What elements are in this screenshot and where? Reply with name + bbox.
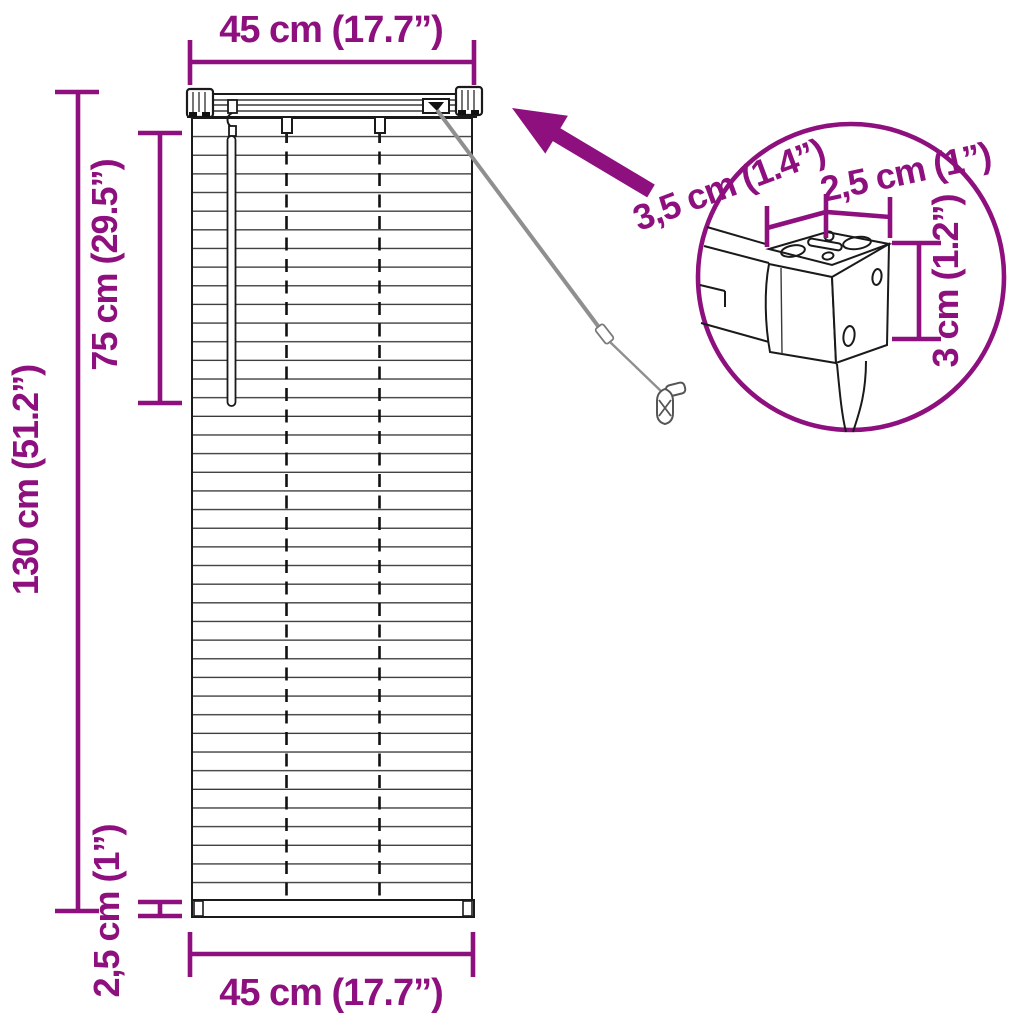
- bottom-rail-label: 2,5 cm (1”): [86, 824, 127, 997]
- detail-height-label: 3 cm (1.2”): [925, 194, 966, 367]
- cord-bead: [595, 323, 615, 344]
- mounting-bracket-right: [456, 87, 482, 115]
- dimension-top-width: 45 cm (17.7”): [190, 9, 474, 85]
- bottom-rail: [192, 900, 474, 917]
- product-dimension-diagram: 45 cm (17.7”) 75 cm (29.5”) 130 cm (51.2…: [0, 0, 1024, 1024]
- dimension-bottom-width: 45 cm (17.7”): [190, 932, 473, 1014]
- top-width-label: 45 cm (17.7”): [219, 9, 443, 51]
- full-drop-label: 130 cm (51.2”): [5, 365, 46, 595]
- mounting-bracket-left: [187, 89, 213, 117]
- pull-cord: [437, 110, 686, 424]
- diagram-canvas: 45 cm (17.7”) 75 cm (29.5”) 130 cm (51.2…: [0, 0, 1024, 1024]
- blind-drawing: [187, 87, 686, 917]
- callout-arrow-icon: [512, 108, 655, 197]
- tilt-wand: [228, 100, 238, 406]
- dimension-bottom-rail: 2,5 cm (1”): [86, 824, 182, 997]
- bottom-width-label: 45 cm (17.7”): [219, 972, 443, 1014]
- partial-drop-label: 75 cm (29.5”): [84, 159, 125, 370]
- cord-tassel: [657, 382, 686, 424]
- dimension-partial-drop: 75 cm (29.5”): [84, 133, 182, 403]
